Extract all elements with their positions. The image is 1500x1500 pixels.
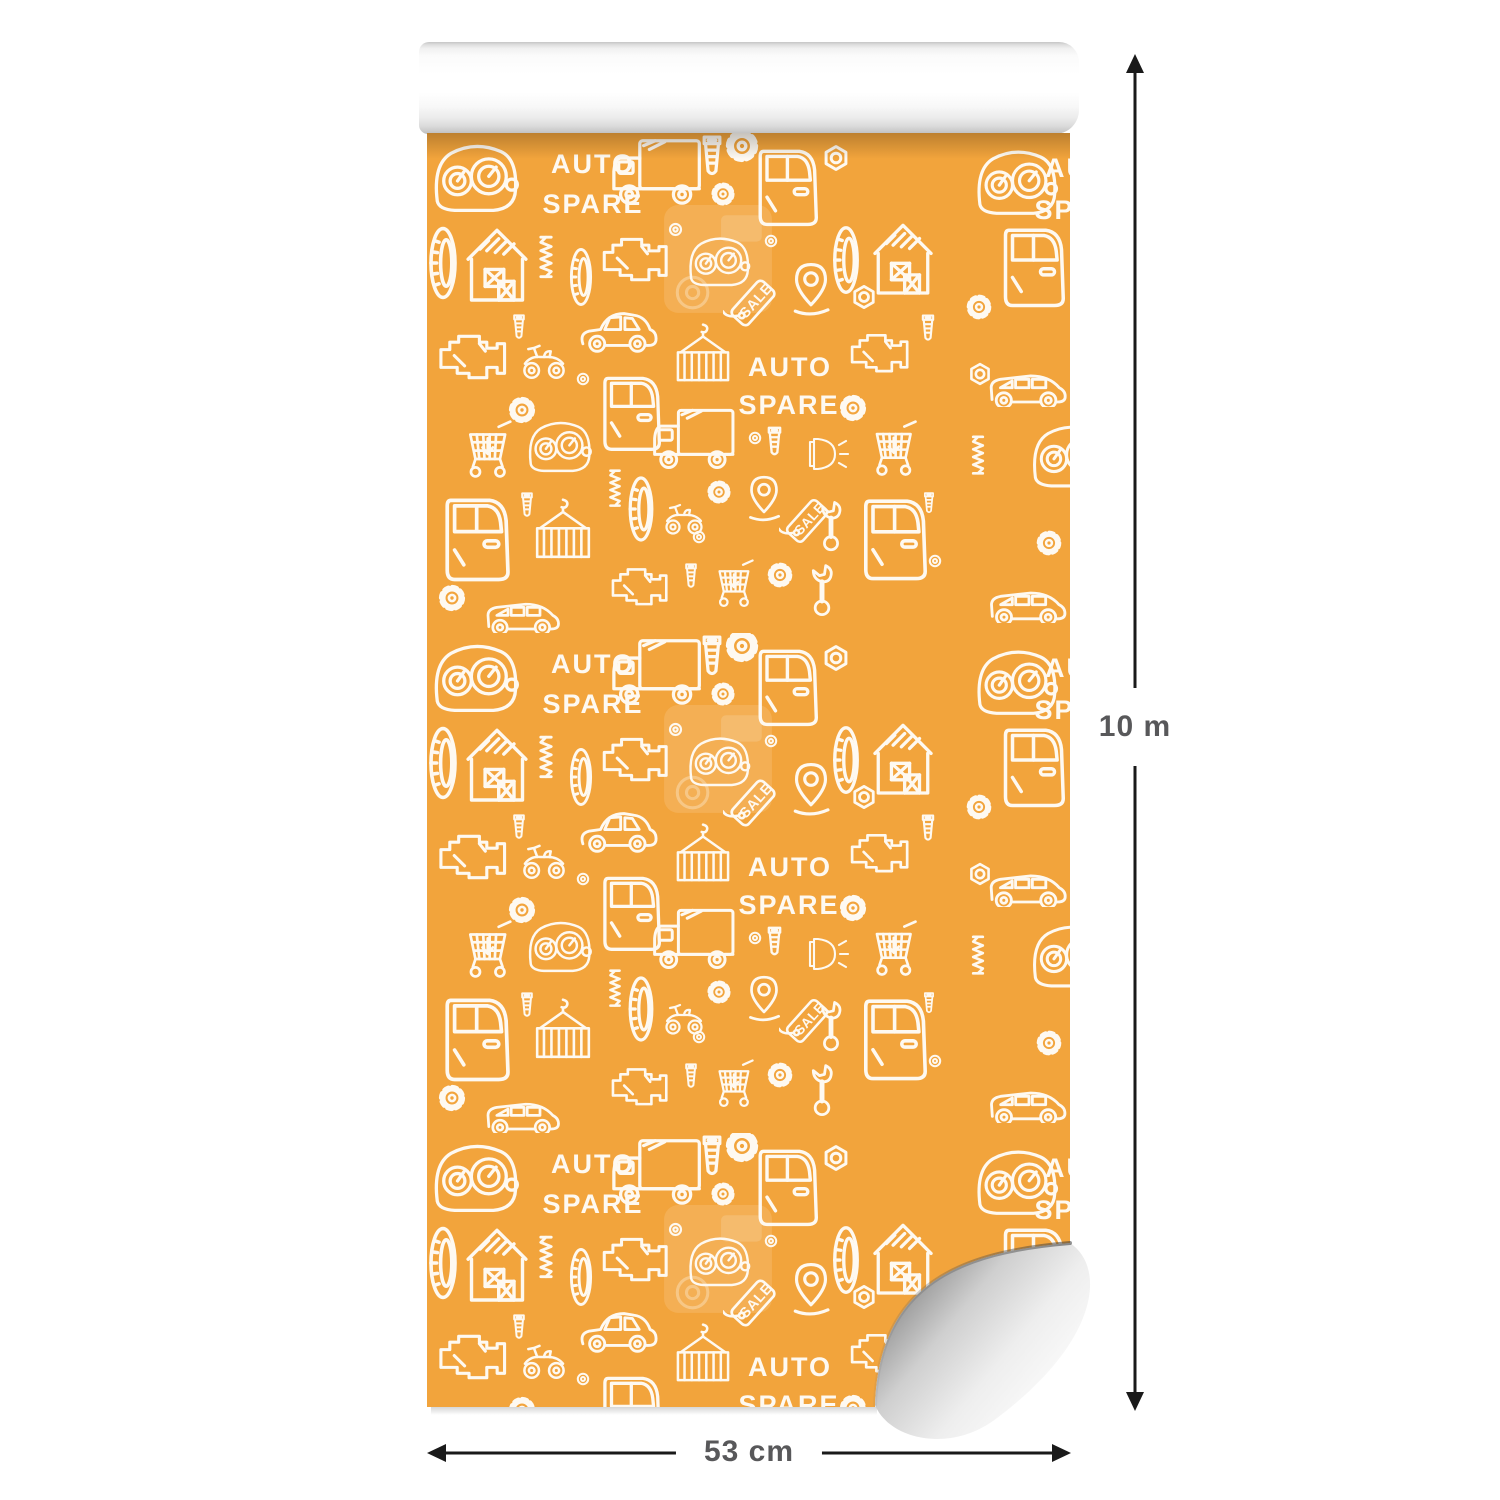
- arrowhead-down: [1126, 1392, 1144, 1411]
- arrowhead-up: [1126, 54, 1144, 73]
- height-label: 10 m: [1089, 688, 1181, 766]
- wallpaper-surface: [427, 133, 1070, 1407]
- sheet-shadow: [431, 1407, 877, 1415]
- product-image: SALE: [0, 0, 1500, 1500]
- wallpaper-sheet: SALE: [427, 133, 1127, 1483]
- wallpaper-roll-core: [419, 42, 1079, 134]
- width-label: 53 cm: [676, 1432, 822, 1472]
